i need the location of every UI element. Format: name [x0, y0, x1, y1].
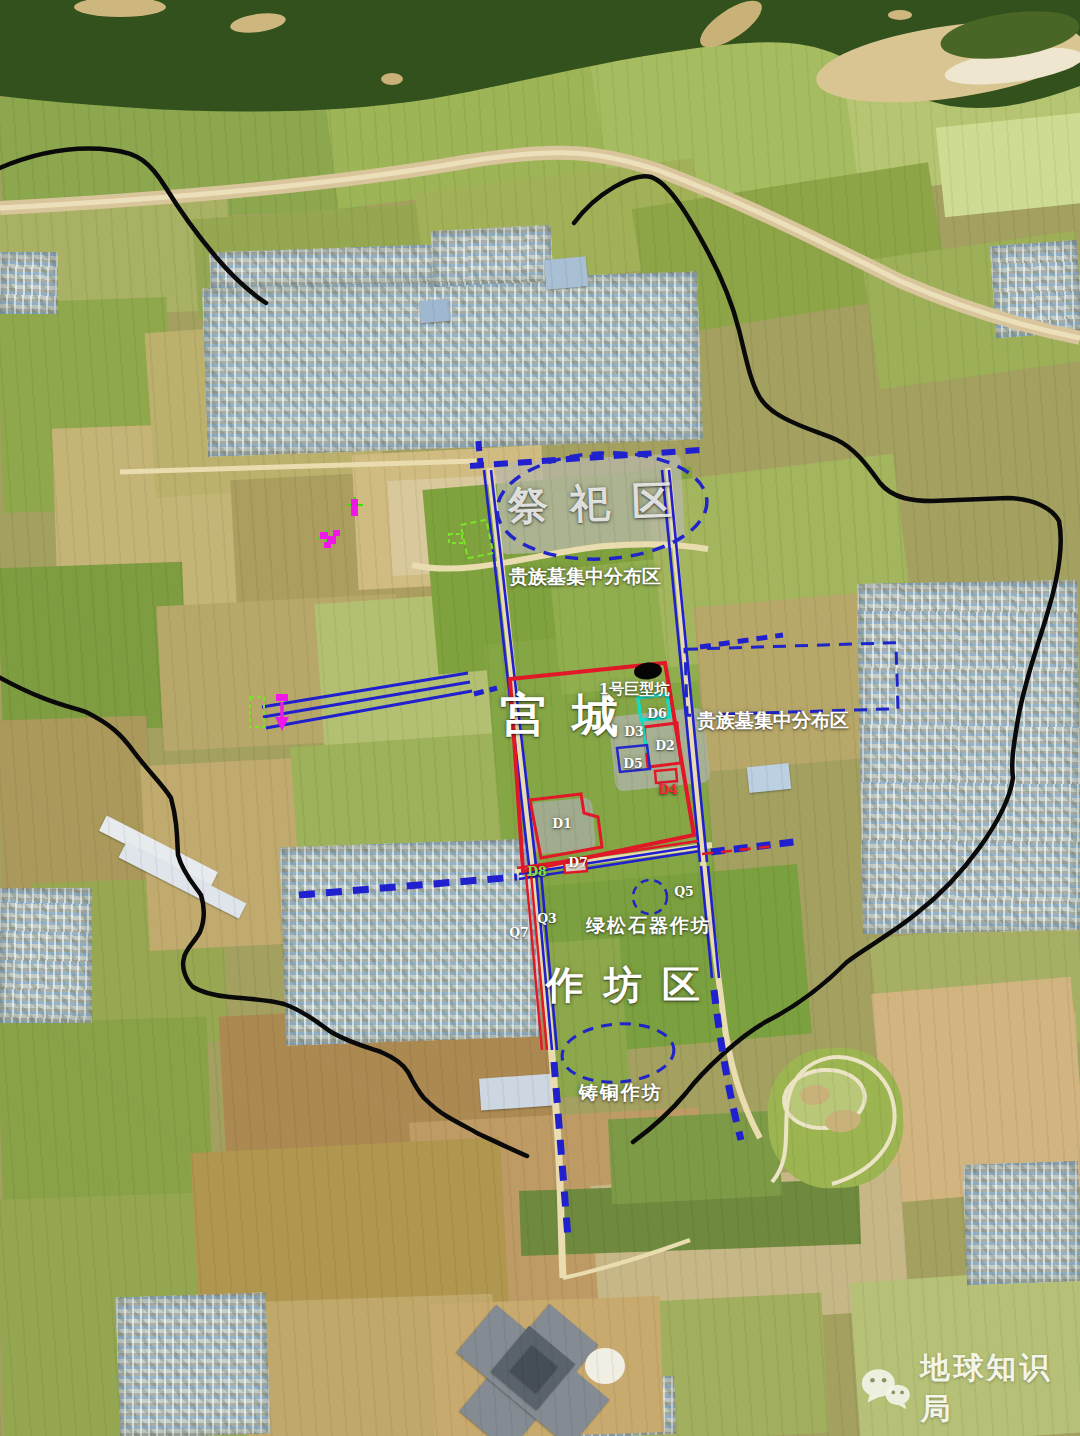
marker-d8: D8 — [527, 864, 547, 879]
wechat-icon — [858, 1363, 912, 1415]
label-giant-pit: 1号巨型坑 — [599, 680, 669, 699]
marker-q3: Q3 — [537, 911, 557, 926]
label-noble-tombs-left: 贵族墓集中分布区 — [509, 564, 661, 590]
label-sacrificial-area: 祭祀区 — [507, 472, 695, 533]
noble-tombs-right-outline — [685, 643, 898, 716]
marker-d3: D3 — [624, 724, 644, 739]
marker-d5: D5 — [623, 756, 643, 771]
turquoise-workshop-outline — [633, 880, 667, 914]
magenta-markers — [275, 499, 358, 731]
watermark-brand: 地球知识局 — [920, 1348, 1080, 1430]
marker-d4: D4 — [658, 782, 678, 797]
marker-q5: Q5 — [674, 884, 694, 899]
ancient-road-lines — [262, 438, 794, 1238]
satellite-site-map: 祭祀区 贵族墓集中分布区 宫城 1号巨型坑 贵族墓集中分布区 绿松石器作坊 作坊… — [0, 0, 1080, 1436]
label-noble-tombs-right: 贵族墓集中分布区 — [697, 708, 849, 734]
label-workshop-area: 作坊区 — [546, 960, 720, 1011]
marker-d7: D7 — [568, 855, 588, 870]
label-bronze-workshop: 铸铜作坊 — [579, 1080, 663, 1106]
bronze-workshop-outline — [560, 1020, 676, 1086]
site-boundary-line — [0, 149, 1061, 1156]
marker-d1: D1 — [552, 816, 572, 831]
watermark: 地球知识局 — [858, 1348, 1080, 1430]
marker-d2: D2 — [655, 738, 675, 753]
marker-d6: D6 — [647, 706, 667, 721]
marker-q7: Q7 — [509, 925, 529, 940]
label-turquoise-workshop: 绿松石器作坊 — [586, 913, 712, 939]
